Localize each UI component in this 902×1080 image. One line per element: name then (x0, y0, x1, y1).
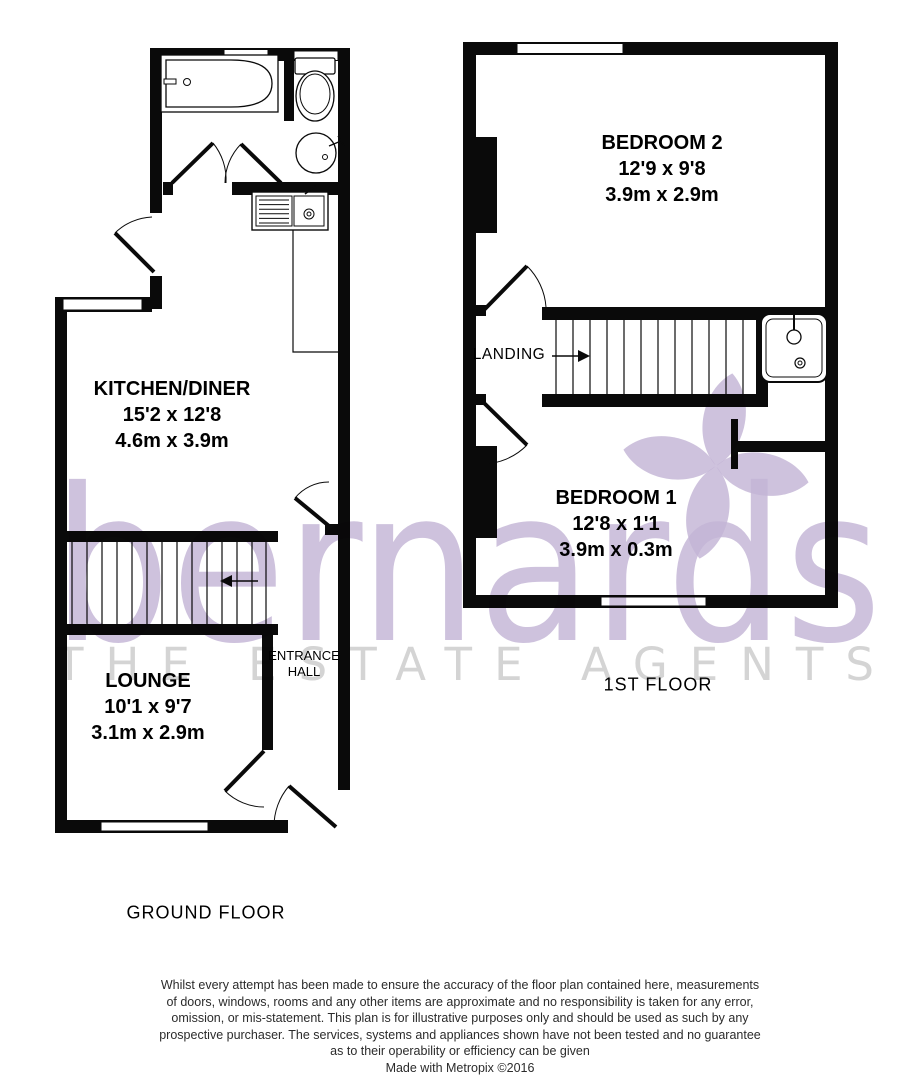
room-dims-m: 3.9m x 0.3m (555, 537, 676, 563)
room-label-bedroom-1: BEDROOM 1 12'8 x 1'1 3.9m x 0.3m (555, 485, 676, 563)
landing-sink-icon (761, 314, 827, 382)
disclaimer-line: as to their operability or efficiency ca… (70, 1043, 850, 1060)
kitchen-sink-icon (252, 185, 328, 231)
room-label-bedroom-2: BEDROOM 2 12'9 x 9'8 3.9m x 2.9m (601, 130, 722, 208)
room-name: BEDROOM 1 (555, 485, 676, 511)
room-dims-ft: 15'2 x 12'8 (94, 402, 251, 428)
ground-floor-title: GROUND FLOOR (126, 903, 285, 924)
room-name: BEDROOM 2 (601, 130, 722, 156)
room-dims-ft: 12'8 x 1'1 (555, 511, 676, 537)
disclaimer-line: prospective purchaser. The services, sys… (70, 1027, 850, 1044)
toilet-icon (295, 58, 335, 121)
disclaimer-line: Whilst every attempt has been made to en… (70, 977, 850, 994)
room-dims-m: 3.9m x 2.9m (601, 182, 722, 208)
metropix-credit: Made with Metropix ©2016 (70, 1060, 850, 1077)
disclaimer-line: of doors, windows, rooms and any other i… (70, 994, 850, 1011)
room-label-entrance-hall: ENTRANCE HALL (268, 648, 340, 680)
room-label-landing: LANDING (473, 346, 545, 364)
room-dims-m: 3.1m x 2.9m (91, 720, 204, 746)
ground-floor-stairs (72, 542, 266, 624)
room-name-line1: ENTRANCE (268, 648, 340, 664)
room-dims-ft: 12'9 x 9'8 (601, 156, 722, 182)
disclaimer-text: Whilst every attempt has been made to en… (70, 977, 850, 1076)
floorplan-page: KITCHEN/DINER 15'2 x 12'8 4.6m x 3.9m LO… (0, 0, 902, 1080)
kitchen-worktop-line (293, 230, 338, 352)
room-dims-m: 4.6m x 3.9m (94, 428, 251, 454)
disclaimer-line: omission, or mis-statement. This plan is… (70, 1010, 850, 1027)
bathtub-icon (161, 55, 278, 112)
first-floor-title: 1ST FLOOR (604, 675, 713, 696)
room-name-line2: HALL (268, 664, 340, 680)
room-name: KITCHEN/DINER (94, 376, 251, 402)
room-name: LOUNGE (91, 668, 204, 694)
basin-icon (296, 133, 344, 173)
room-label-lounge: LOUNGE 10'1 x 9'7 3.1m x 2.9m (91, 668, 204, 746)
room-dims-ft: 10'1 x 9'7 (91, 694, 204, 720)
stairs-up-arrow-icon (552, 350, 590, 362)
room-label-kitchen-diner: KITCHEN/DINER 15'2 x 12'8 4.6m x 3.9m (94, 376, 251, 454)
